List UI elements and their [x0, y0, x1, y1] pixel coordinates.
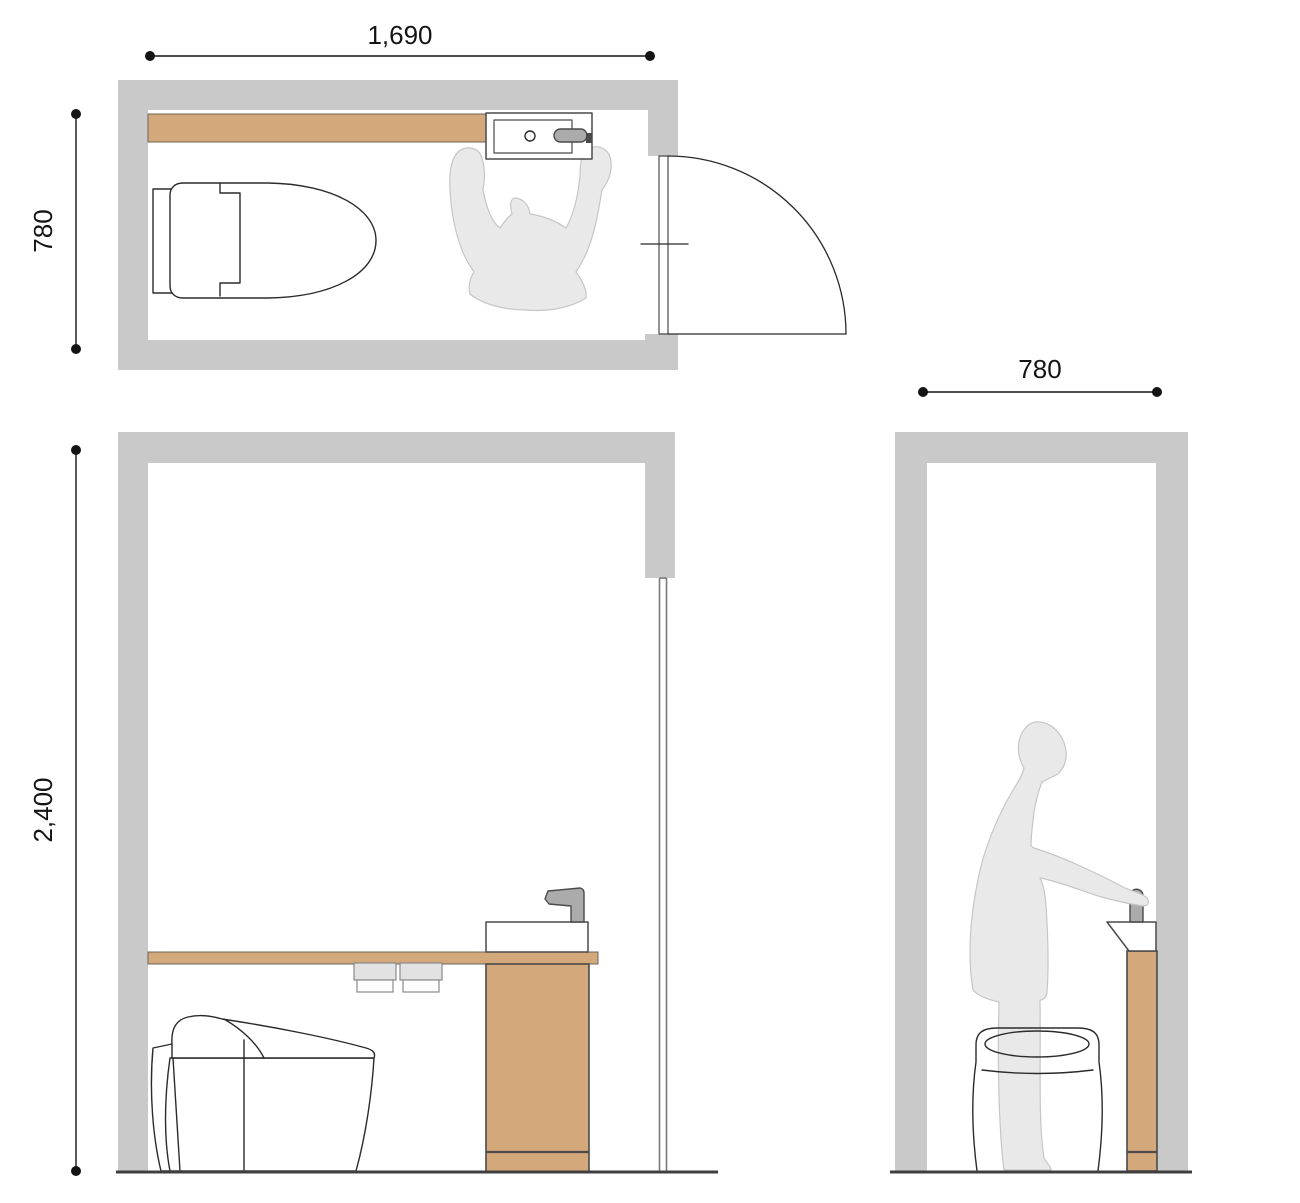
dimension-endpoint: [1152, 387, 1162, 397]
side-wall-left: [895, 432, 927, 1172]
room-width-dimension: 780: [918, 354, 1162, 397]
side-elevation: 780: [890, 354, 1192, 1172]
plan-toilet: [153, 183, 376, 298]
dimension-endpoint: [645, 51, 655, 61]
sink-faucet-front: [545, 888, 584, 922]
dimension-endpoint: [71, 344, 81, 354]
person-side-silhouette: [970, 722, 1148, 1170]
plan-wall-top: [118, 80, 678, 110]
plan-width-dimension: 1,690: [145, 20, 655, 61]
sink-faucet-mount-plan: [586, 133, 592, 143]
side-wall-top: [895, 432, 1188, 463]
plan-door: [641, 156, 846, 334]
elevation-wall-top: [118, 432, 675, 463]
elevation-door-edge: [660, 578, 667, 1171]
dimension-endpoint: [71, 1166, 81, 1176]
architectural-drawing: 1,690 780: [0, 0, 1300, 1203]
plan-counter: [148, 114, 486, 142]
elevation-counter: [148, 952, 598, 964]
toilet-bowl-outline-plan: [170, 183, 376, 298]
elevation-wash-unit: [486, 888, 589, 1172]
dimension-endpoint: [71, 445, 81, 455]
plan-wall-right-lower: [645, 334, 678, 370]
person-top-silhouette: [450, 147, 611, 311]
dimension-endpoint: [918, 387, 928, 397]
toilet-body-side: [166, 1058, 375, 1171]
plan-depth-label: 780: [28, 209, 58, 252]
pedestal-wash-unit: [1107, 889, 1157, 1171]
dimension-endpoint: [145, 51, 155, 61]
dimension-endpoint: [71, 109, 81, 119]
plan-depth-dimension: 780: [28, 109, 81, 354]
side-wall-right: [1156, 432, 1188, 1172]
toilet-lid-side: [172, 1016, 375, 1058]
sink-basin-side: [1107, 922, 1156, 951]
plan-wall-bottom: [118, 340, 655, 370]
plan-view: 1,690 780: [28, 20, 846, 370]
plan-width-label: 1,690: [367, 20, 432, 50]
toilet-side-view: [151, 1016, 374, 1171]
front-elevation: 2,400: [28, 432, 718, 1176]
room-width-label: 780: [1018, 354, 1061, 384]
sink-faucet-plan: [554, 129, 587, 142]
paper-roll: [357, 980, 393, 992]
elevation-wall-left: [118, 432, 148, 1172]
plan-wall-left: [118, 80, 148, 370]
door-swing-arc: [668, 156, 846, 334]
sink-cabinet: [486, 964, 589, 1172]
toilet-flush-unit-plan: [153, 189, 172, 293]
plan-wall-right-upper: [648, 80, 678, 156]
door-leaf: [659, 156, 668, 334]
paper-roll: [403, 980, 439, 992]
paper-holder-cover: [400, 963, 442, 980]
paper-holder-cover: [354, 963, 396, 980]
paper-holders: [354, 963, 442, 992]
sink-basin-front: [486, 922, 588, 952]
ceiling-height-label: 2,400: [28, 777, 58, 842]
ceiling-height-dimension: 2,400: [28, 445, 81, 1176]
elevation-wall-over-door: [645, 432, 675, 578]
pedestal-cabinet: [1127, 951, 1157, 1171]
plan-sink: [486, 113, 592, 159]
